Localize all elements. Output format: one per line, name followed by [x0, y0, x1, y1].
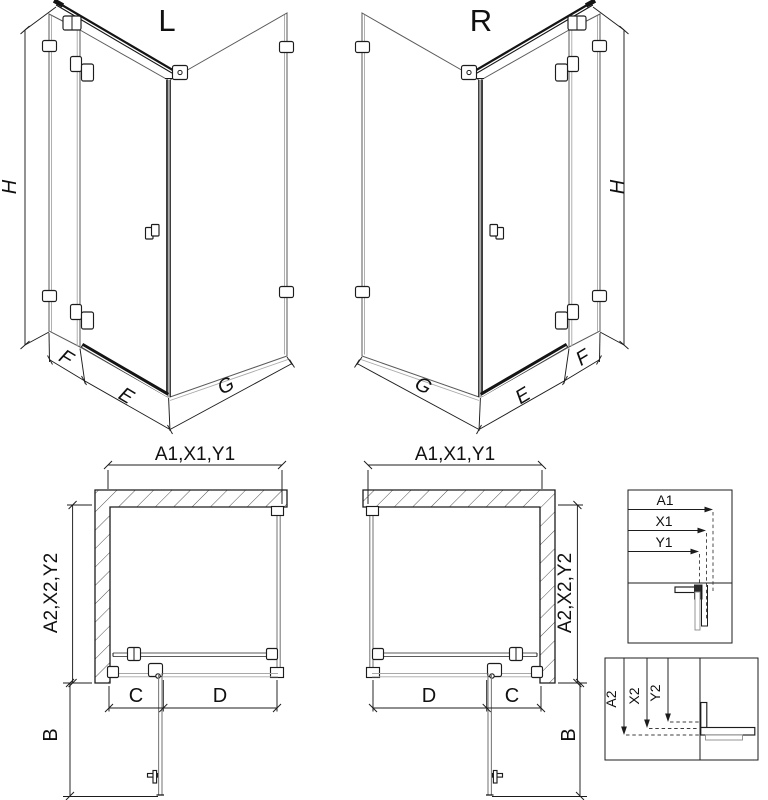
plan-right-dim-d: D [422, 685, 436, 707]
detail-widths-frame [628, 490, 732, 643]
iso-right-label: R [470, 3, 492, 38]
iso-view-left: L H F E G [0, 1, 295, 435]
plan-view-left: A1,X1,Y1 A2,X2,Y2 C D B [40, 444, 287, 800]
detail-label-a1: A1 [656, 492, 673, 508]
plan-right-dim-b: B [558, 728, 580, 741]
iso-view-right: R H F E G [355, 1, 630, 435]
plan-left-dim-b: B [40, 728, 62, 741]
shower-enclosure-diagram: L H F E G R H F E G A1,X1,Y1 A2,X2,Y2 C … [0, 0, 768, 800]
iso-right-dim-e: E [512, 383, 535, 409]
plan-left-dim-d: D [213, 685, 227, 707]
iso-left-dim-f: F [55, 345, 78, 371]
iso-left-dim-g: G [214, 373, 238, 400]
detail-depths-profile [701, 703, 755, 741]
detail-label-x2: X2 [626, 687, 642, 704]
detail-label-y2: Y2 [647, 684, 663, 701]
plan-left-depth-label: A2,X2,Y2 [41, 553, 62, 633]
iso-left-geometry [21, 1, 295, 435]
iso-left-label: L [158, 3, 175, 38]
iso-right-dim-h: H [607, 179, 629, 194]
plan-right-dim-c: C [505, 685, 519, 707]
wall-hatch [363, 490, 555, 683]
plan-left-width-label: A1,X1,Y1 [155, 444, 235, 465]
iso-left-dim-h: H [0, 179, 21, 194]
plan-left-dim-c: C [129, 685, 143, 707]
detail-box-widths: A1 X1 Y1 [628, 490, 732, 643]
detail-label-a2: A2 [603, 690, 619, 707]
detail-box-depths: A2 X2 Y2 [603, 658, 758, 760]
detail-label-y1: Y1 [655, 534, 672, 550]
iso-left-dim-e: E [115, 383, 138, 409]
detail-depths-frame [605, 658, 758, 760]
plan-right-depth-label: A2,X2,Y2 [555, 553, 576, 633]
iso-right-dim-f: F [572, 345, 595, 371]
detail-label-x1: X1 [655, 513, 672, 529]
wall-hatch [95, 490, 287, 683]
iso-right-geometry [355, 1, 629, 435]
detail-widths-profile [675, 585, 708, 631]
plan-view-right: A1,X1,Y1 A2,X2,Y2 D C B [363, 444, 587, 800]
iso-right-dim-g: G [411, 373, 435, 400]
plan-right-width-label: A1,X1,Y1 [415, 444, 495, 465]
